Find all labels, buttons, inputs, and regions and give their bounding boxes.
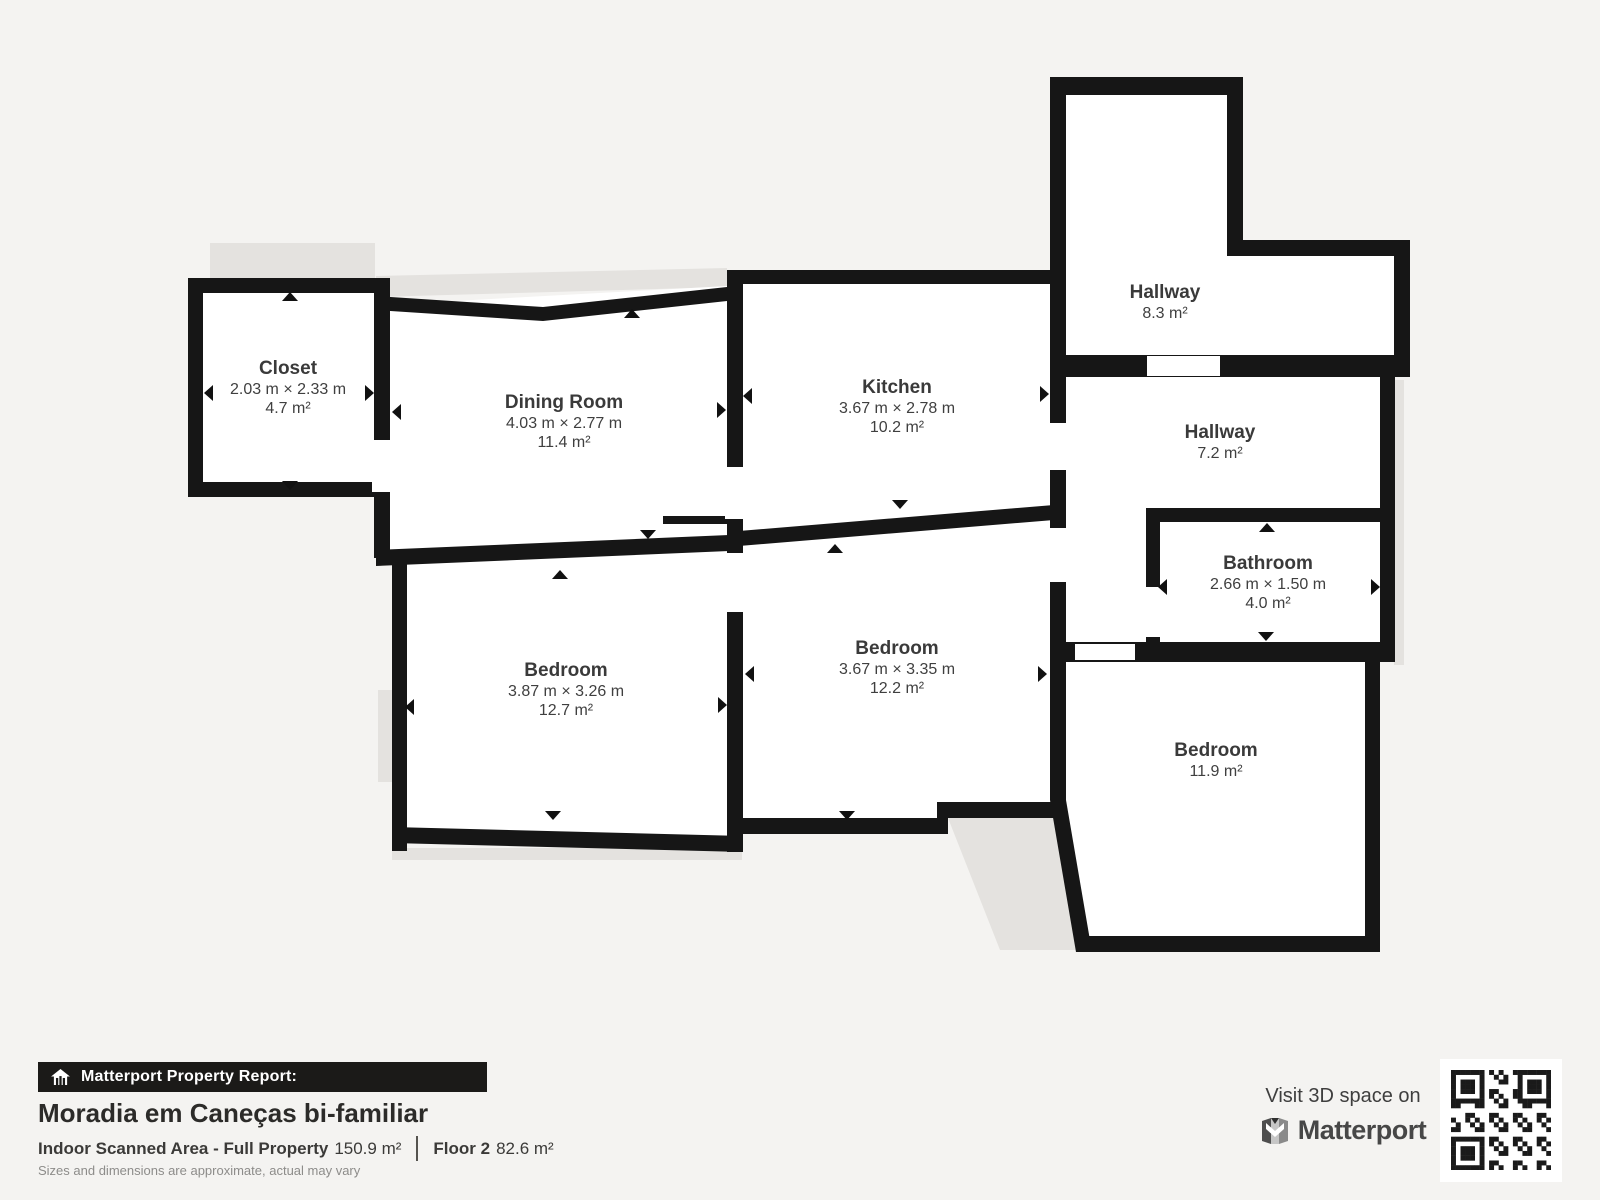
report-badge-bar: Matterport Property Report: bbox=[38, 1062, 487, 1092]
room-name: Bedroom bbox=[508, 660, 624, 682]
room-name: Bedroom bbox=[839, 638, 955, 660]
matterport-promo: Visit 3D space on Matterport bbox=[1243, 1085, 1443, 1146]
door-bedroom-right bbox=[1075, 644, 1135, 660]
room-label-bedroom-left: Bedroom 3.87 m × 3.26 m 12.7 m² bbox=[508, 660, 624, 720]
scanned-area-value: 150.9 m² bbox=[334, 1139, 401, 1159]
divider bbox=[416, 1136, 418, 1161]
room-area: 11.4 m² bbox=[505, 433, 623, 452]
room-label-bedroom-right: Bedroom 11.9 m² bbox=[1174, 740, 1257, 781]
room-label-dining-room: Dining Room 4.03 m × 2.77 m 11.4 m² bbox=[505, 392, 623, 452]
qr-code-pattern bbox=[1451, 1070, 1551, 1170]
room-dims: 2.66 m × 1.50 m bbox=[1210, 575, 1326, 594]
door-bedroom-mid bbox=[1048, 528, 1068, 582]
floor-value: 82.6 m² bbox=[496, 1139, 554, 1159]
room-name: Bedroom bbox=[1174, 740, 1257, 762]
room-name: Hallway bbox=[1130, 282, 1201, 304]
area-info-line: Indoor Scanned Area - Full Property 150.… bbox=[38, 1136, 554, 1161]
room-label-bathroom: Bathroom 2.66 m × 1.50 m 4.0 m² bbox=[1210, 553, 1326, 613]
room-label-hallway-lower: Hallway 7.2 m² bbox=[1185, 422, 1256, 463]
matterport-logo: Matterport bbox=[1260, 1115, 1427, 1146]
property-title: Moradia em Caneças bi-familiar bbox=[38, 1098, 428, 1129]
room-label-hallway-upper: Hallway 8.3 m² bbox=[1130, 282, 1201, 323]
room-dims: 4.03 m × 2.77 m bbox=[505, 414, 623, 433]
room-area: 4.7 m² bbox=[230, 399, 346, 418]
room-area: 4.0 m² bbox=[1210, 594, 1326, 613]
room-name: Bathroom bbox=[1210, 553, 1326, 575]
room-name: Hallway bbox=[1185, 422, 1256, 444]
room-area: 12.7 m² bbox=[508, 701, 624, 720]
room-area: 7.2 m² bbox=[1185, 444, 1256, 463]
room-area: 12.2 m² bbox=[839, 679, 955, 698]
scanned-area-label: Indoor Scanned Area - Full Property bbox=[38, 1139, 328, 1159]
matterport-m-icon bbox=[1260, 1116, 1290, 1146]
door-bedroom-left bbox=[725, 553, 745, 612]
room-label-closet: Closet 2.03 m × 2.33 m 4.7 m² bbox=[230, 358, 346, 418]
room-label-kitchen: Kitchen 3.67 m × 2.78 m 10.2 m² bbox=[839, 377, 955, 437]
room-dims: 3.67 m × 3.35 m bbox=[839, 660, 955, 679]
visit-3d-text: Visit 3D space on bbox=[1265, 1085, 1420, 1108]
floor-label: Floor 2 bbox=[433, 1139, 490, 1159]
qr-code bbox=[1440, 1059, 1562, 1182]
room-dims: 3.67 m × 2.78 m bbox=[839, 399, 955, 418]
room-name: Closet bbox=[230, 358, 346, 380]
room-area: 10.2 m² bbox=[839, 418, 955, 437]
matterport-wordmark: Matterport bbox=[1298, 1115, 1427, 1146]
room-dims: 3.87 m × 3.26 m bbox=[508, 682, 624, 701]
room-area: 8.3 m² bbox=[1130, 304, 1201, 323]
door-closet bbox=[372, 440, 392, 492]
door-hallways bbox=[1147, 356, 1220, 376]
room-name: Kitchen bbox=[839, 377, 955, 399]
house-icon bbox=[51, 1069, 70, 1086]
door-kitchen-hallway bbox=[1048, 423, 1068, 470]
room-area: 11.9 m² bbox=[1174, 762, 1257, 781]
door-bathroom bbox=[1144, 587, 1162, 637]
room-bedroom-right-floor bbox=[1062, 658, 1369, 940]
disclaimer-text: Sizes and dimensions are approximate, ac… bbox=[38, 1163, 360, 1178]
floor-plan bbox=[0, 0, 1600, 1200]
room-name: Dining Room bbox=[505, 392, 623, 414]
door-dining-kitchen bbox=[725, 467, 745, 519]
report-badge-label: Matterport Property Report: bbox=[81, 1068, 297, 1086]
room-dims: 2.03 m × 2.33 m bbox=[230, 380, 346, 399]
room-label-bedroom-mid: Bedroom 3.67 m × 3.35 m 12.2 m² bbox=[839, 638, 955, 698]
